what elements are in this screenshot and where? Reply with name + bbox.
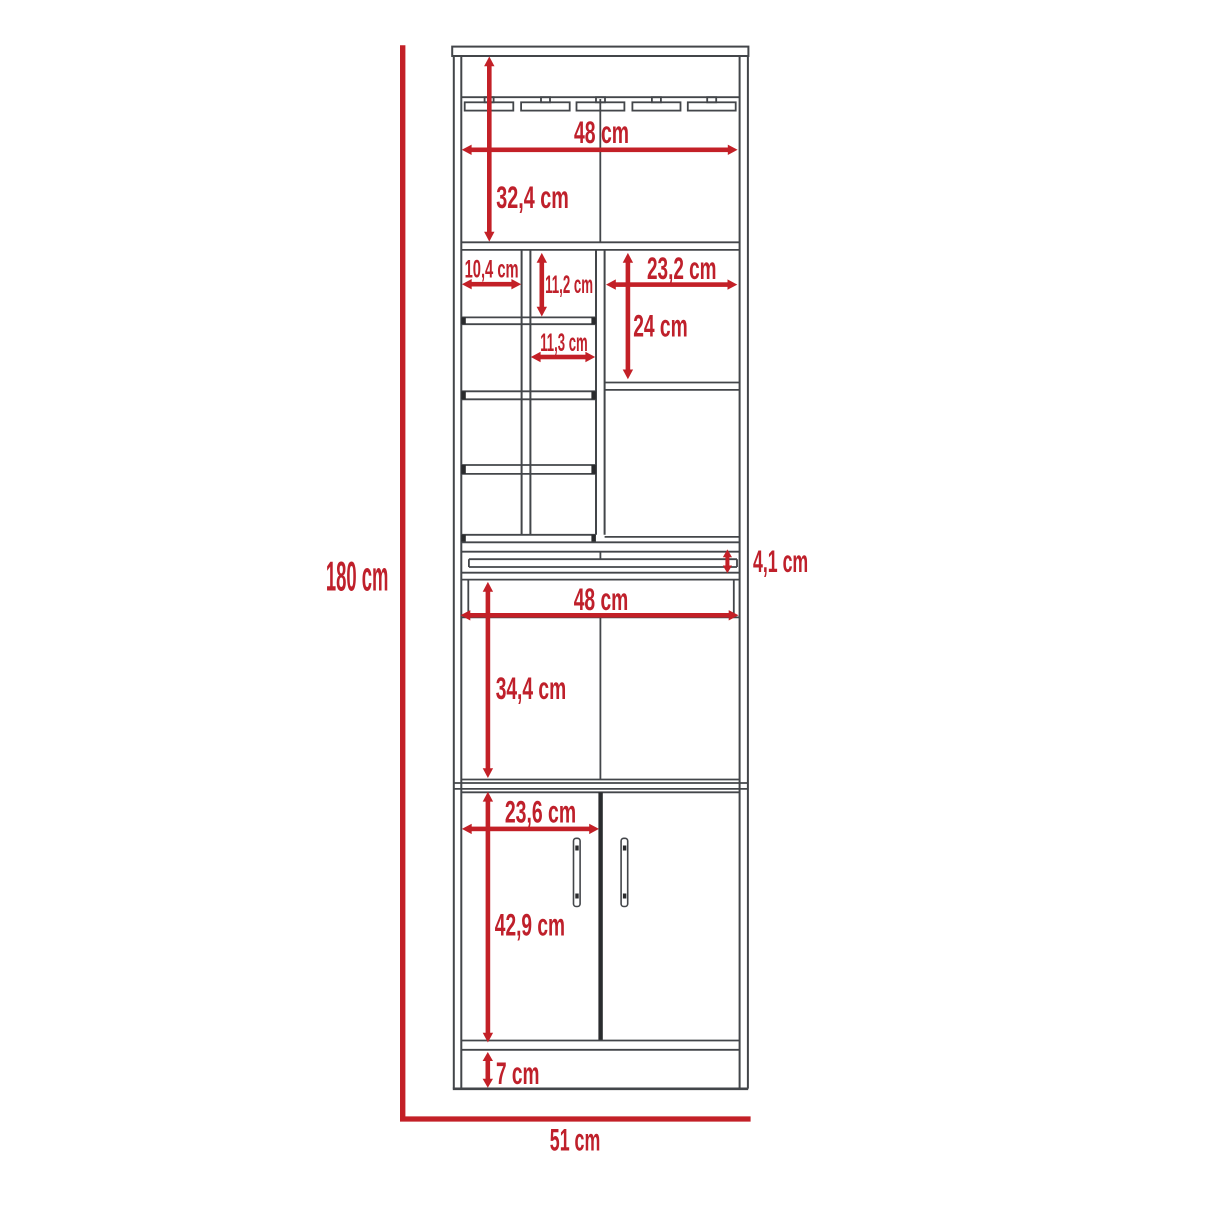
svg-text:23,6 cm: 23,6 cm xyxy=(505,794,576,829)
svg-text:42,9 cm: 42,9 cm xyxy=(495,908,565,943)
svg-text:48 cm: 48 cm xyxy=(574,115,629,150)
svg-text:11,3 cm: 11,3 cm xyxy=(540,329,588,357)
svg-text:48 cm: 48 cm xyxy=(574,582,629,617)
svg-text:7 cm: 7 cm xyxy=(496,1056,540,1091)
svg-text:4,1 cm: 4,1 cm xyxy=(753,544,808,579)
svg-text:11,2 cm: 11,2 cm xyxy=(545,271,593,299)
svg-text:32,4 cm: 32,4 cm xyxy=(496,180,569,215)
svg-text:51 cm: 51 cm xyxy=(550,1123,601,1158)
svg-text:24 cm: 24 cm xyxy=(633,309,688,344)
svg-text:10,4 cm: 10,4 cm xyxy=(465,255,519,283)
svg-text:34,4 cm: 34,4 cm xyxy=(496,671,567,706)
svg-text:23,2 cm: 23,2 cm xyxy=(647,251,717,286)
svg-text:180 cm: 180 cm xyxy=(326,552,389,599)
